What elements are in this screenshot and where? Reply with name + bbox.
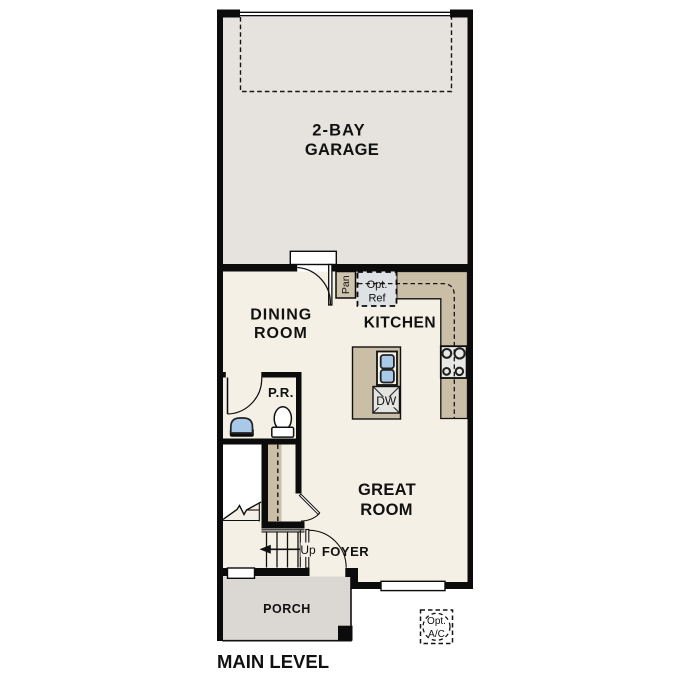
svg-text:2-BAY: 2-BAY [312,121,366,139]
svg-text:KITCHEN: KITCHEN [364,315,436,332]
svg-text:Opt.: Opt. [367,279,388,291]
svg-text:ROOM: ROOM [360,501,413,519]
svg-text:Ref: Ref [368,293,386,305]
svg-text:MAIN LEVEL: MAIN LEVEL [217,651,329,672]
svg-text:Up: Up [300,543,316,557]
svg-text:P.R.: P.R. [268,385,294,400]
svg-text:FOYER: FOYER [322,544,369,559]
svg-text:A/C: A/C [428,629,445,640]
svg-text:DINING: DINING [250,306,312,323]
svg-text:GARAGE: GARAGE [305,141,379,159]
svg-text:ROOM: ROOM [254,325,308,342]
svg-text:DW: DW [376,394,397,408]
svg-text:Opt.: Opt. [427,616,446,627]
svg-text:GREAT: GREAT [358,481,416,499]
svg-text:Pan: Pan [340,275,352,294]
svg-text:PORCH: PORCH [263,602,311,616]
